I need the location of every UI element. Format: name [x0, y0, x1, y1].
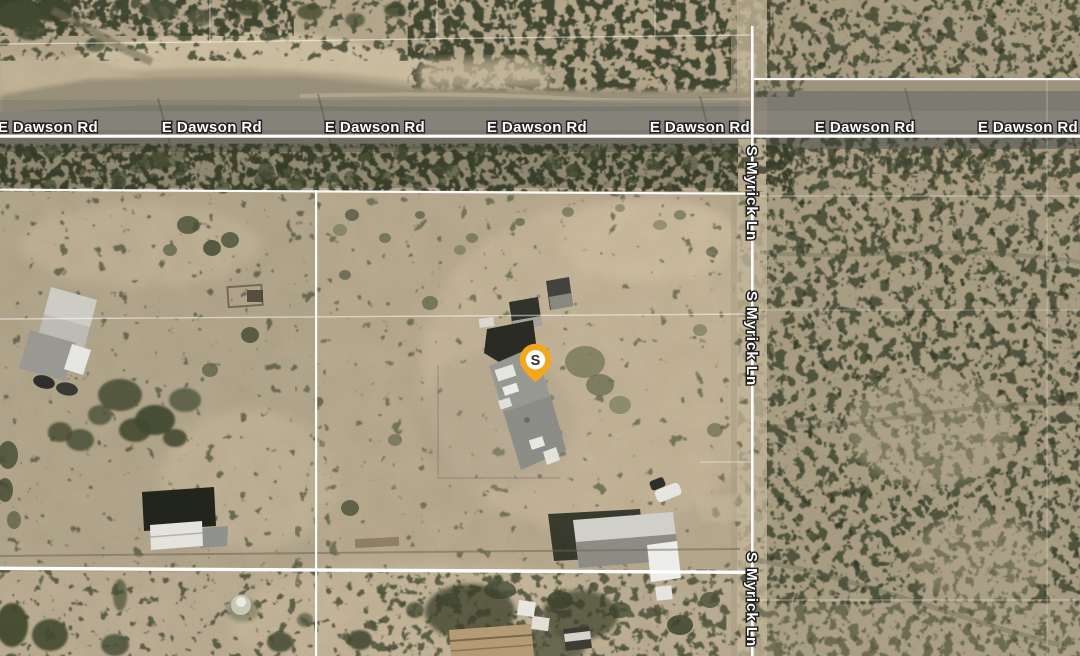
svg-text:E Dawson Rd: E Dawson Rd: [978, 119, 1078, 136]
svg-text:E Dawson Rd: E Dawson Rd: [0, 119, 98, 136]
svg-text:E Dawson Rd: E Dawson Rd: [487, 119, 587, 136]
svg-text:E Dawson Rd: E Dawson Rd: [815, 119, 915, 136]
svg-text:S: S: [531, 353, 541, 369]
svg-text:E Dawson Rd: E Dawson Rd: [650, 119, 750, 136]
svg-text:S Myrick Ln: S Myrick Ln: [743, 552, 760, 647]
svg-text:S Myrick Ln: S Myrick Ln: [743, 291, 760, 386]
svg-text:S Myrick Ln: S Myrick Ln: [743, 146, 760, 241]
svg-text:E Dawson Rd: E Dawson Rd: [325, 119, 425, 136]
svg-text:E Dawson Rd: E Dawson Rd: [162, 119, 262, 136]
